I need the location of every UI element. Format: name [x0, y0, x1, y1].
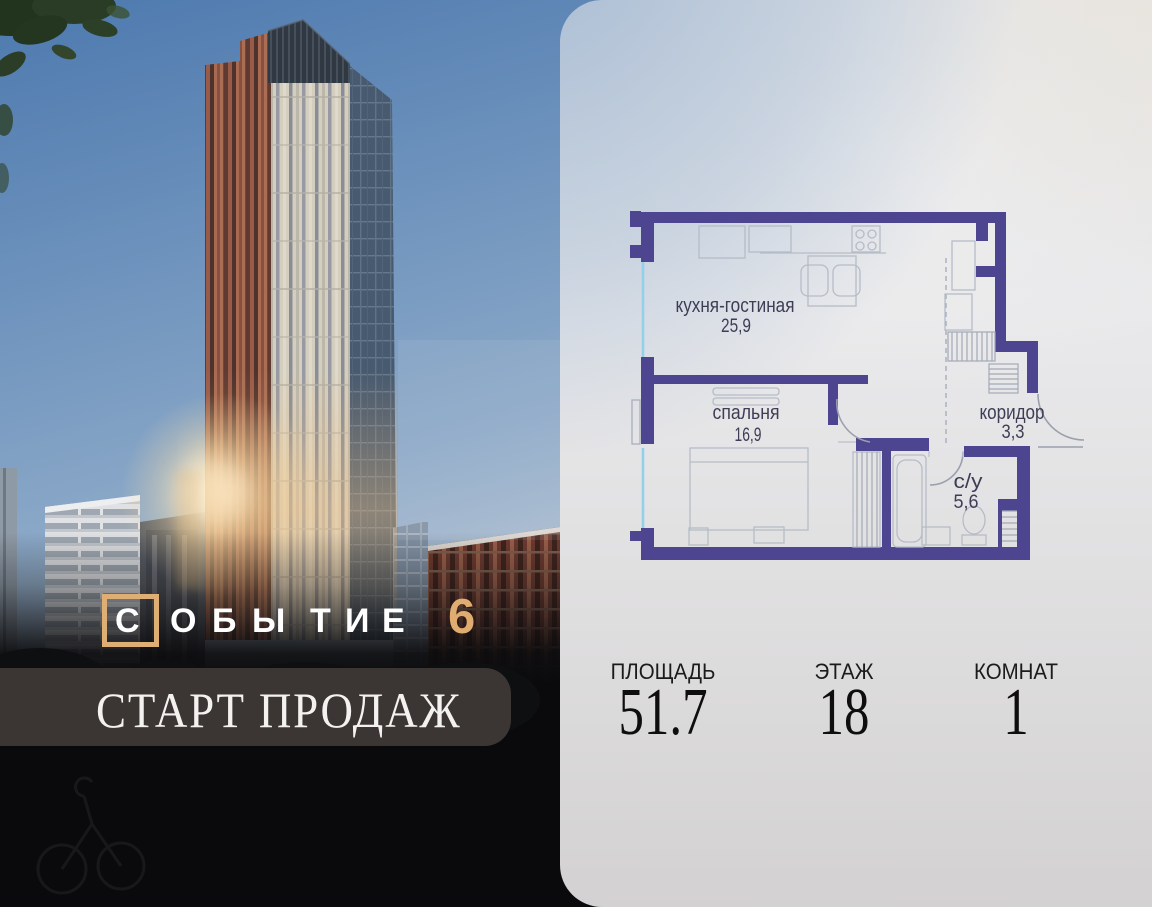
svg-text:25,9: 25,9	[721, 316, 751, 337]
svg-text:5,6: 5,6	[954, 492, 979, 513]
svg-text:3,3: 3,3	[1002, 422, 1025, 443]
svg-text:16,9: 16,9	[735, 425, 762, 446]
svg-text:коридор: коридор	[980, 402, 1045, 424]
svg-text:кухня-гостиная: кухня-гостиная	[676, 295, 795, 317]
svg-text:с/у: с/у	[954, 471, 983, 493]
svg-text:спальня: спальня	[713, 402, 780, 424]
